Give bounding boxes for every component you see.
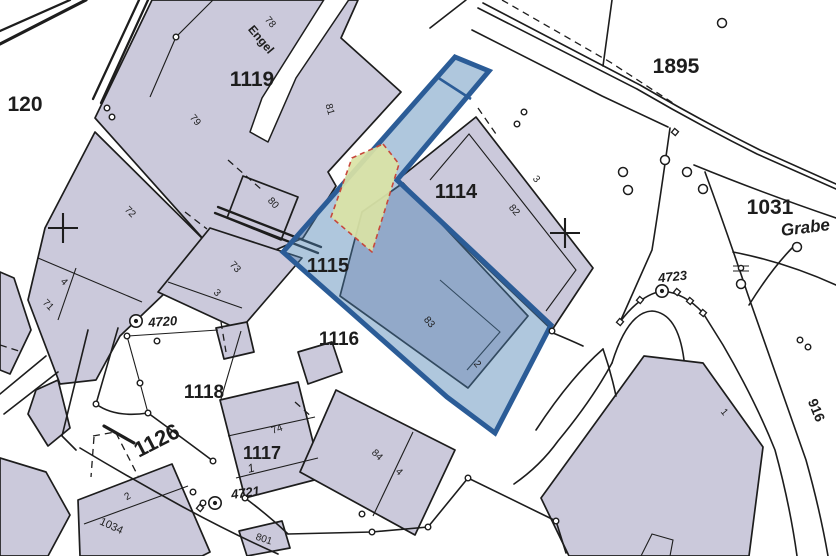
boundary-point-icon	[465, 475, 471, 481]
map-label-4720: 4720	[147, 313, 179, 330]
benchmark-point-icon	[656, 285, 668, 297]
boundary-point-icon	[359, 511, 365, 517]
boundary-point-icon	[797, 337, 803, 343]
tree-circle-icon	[661, 156, 670, 165]
map-label-120: 120	[7, 93, 42, 116]
boundary-point-icon	[425, 524, 431, 530]
tree-circle-icon	[619, 168, 628, 177]
boundary-point-icon	[553, 518, 559, 524]
tree-circle-icon	[718, 19, 727, 28]
cadastral-map-viewport: 111912018951031111411151116111811171126G…	[0, 0, 836, 556]
boundary-point-icon	[154, 338, 160, 344]
map-label-1895: 1895	[653, 55, 700, 78]
boundary-point-icon	[109, 114, 115, 120]
boundary-point-icon	[173, 34, 179, 40]
benchmark-point-icon	[209, 497, 221, 509]
map-label-1114: 1114	[435, 181, 478, 203]
boundary-point-icon	[210, 458, 216, 464]
tree-circle-icon	[683, 168, 692, 177]
map-label-1116: 1116	[319, 329, 359, 350]
boundary-point-icon	[521, 109, 527, 115]
map-label-1119: 1119	[230, 68, 274, 91]
boundary-point-icon	[104, 105, 110, 111]
tree-circle-icon	[793, 243, 802, 252]
boundary-point-icon	[124, 333, 130, 339]
boundary-point-icon	[145, 410, 151, 416]
boundary-point-icon	[805, 344, 811, 350]
map-label-1115: 1115	[307, 255, 349, 277]
boundary-point-icon	[190, 489, 196, 495]
tree-circle-icon	[699, 185, 708, 194]
benchmark-point-icon	[130, 315, 142, 327]
map-label-1117: 1117	[243, 443, 281, 463]
cadastral-map: 111912018951031111411151116111811171126G…	[0, 0, 836, 556]
map-label-4723: 4723	[656, 267, 688, 285]
map-label-1031: 1031	[747, 196, 794, 219]
boundary-point-icon	[514, 121, 520, 127]
boundary-point-icon	[549, 328, 555, 334]
boundary-point-icon	[137, 380, 143, 386]
boundary-point-icon	[369, 529, 375, 535]
tree-circle-icon	[737, 280, 746, 289]
boundary-point-icon	[93, 401, 99, 407]
tree-circle-icon	[624, 186, 633, 195]
map-label-1118: 1118	[184, 382, 224, 403]
